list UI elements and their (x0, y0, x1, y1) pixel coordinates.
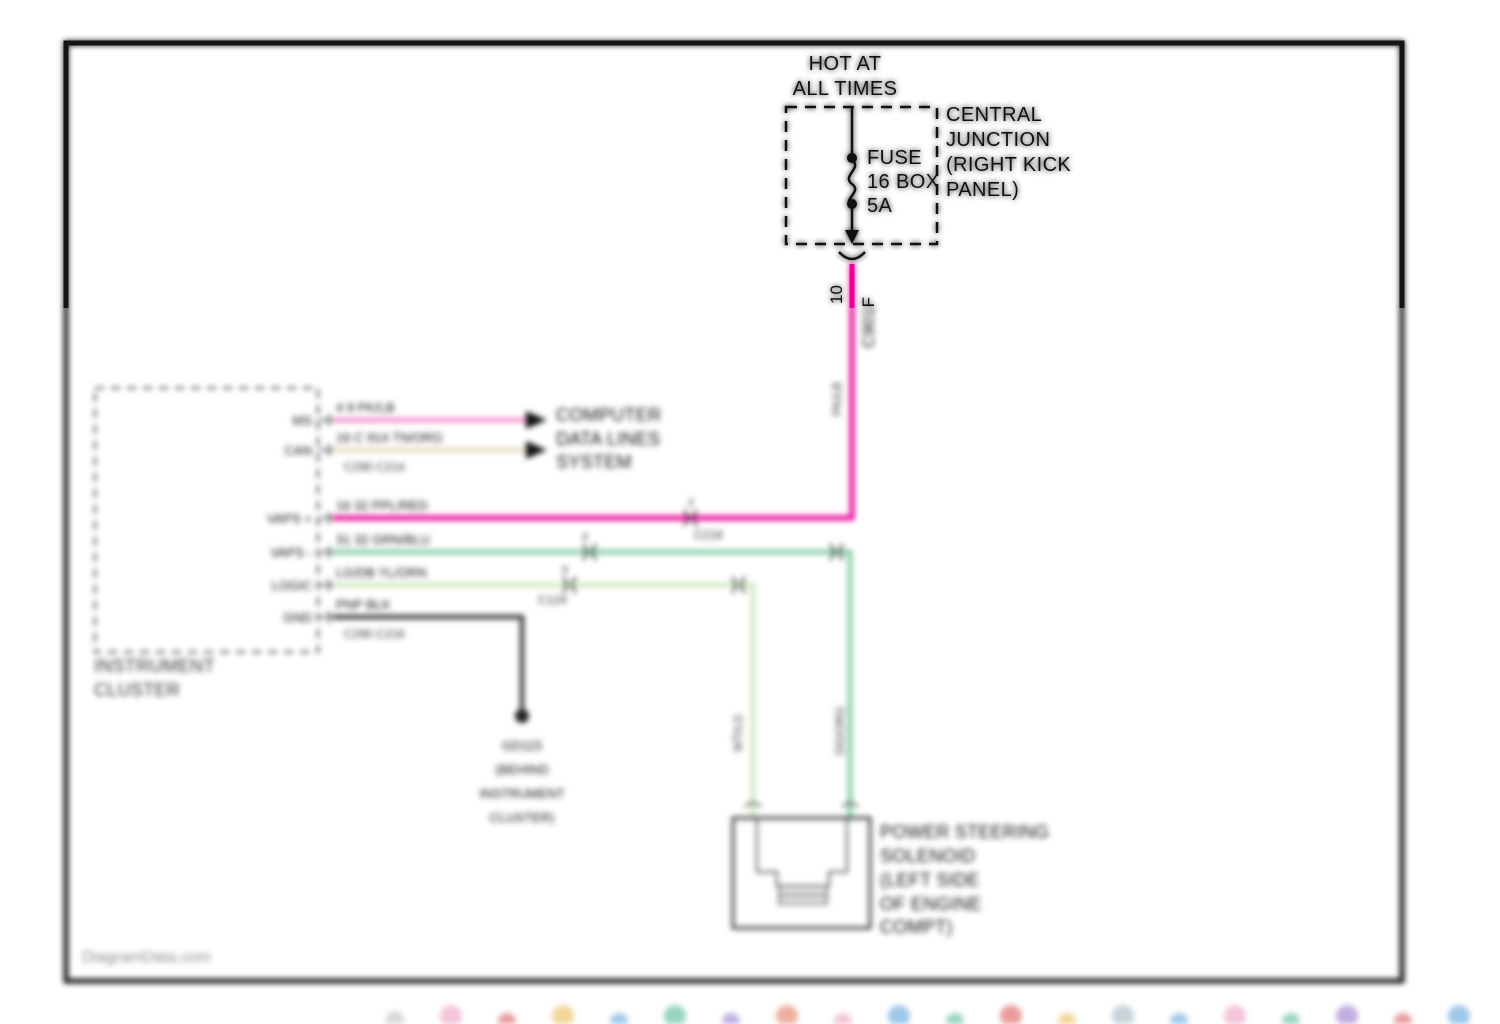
feed-connector-cap-icon (839, 252, 865, 259)
instrument-cluster-name-line2: CLUSTER (94, 680, 180, 700)
vaps-plus-wire-label: 16 32 PPL/RED (336, 498, 428, 513)
wiring-diagram-page: HOT AT ALL TIMES FUSE 16 BOX 5A CENTRAL … (0, 0, 1500, 1024)
ground-wire-label: PNP BLK (336, 597, 391, 612)
solenoid-label-line3: (LEFT SIDE (880, 870, 980, 890)
pin-label-can: CAN (285, 443, 312, 458)
solenoid-label-line1: POWER STEERING (880, 822, 1049, 842)
logic-inline-pin: 5 (562, 564, 568, 576)
ground-splice-dot (515, 709, 529, 723)
vaps-plus-inline-connector-label: C218 (694, 528, 723, 542)
vaps-plus-inline-pin: 2 (688, 497, 694, 509)
vaps-minus-wire (333, 552, 850, 818)
junction-location-line1: CENTRAL (946, 104, 1042, 126)
ground-location-line1: (BEHIND (495, 762, 548, 777)
pin-label-logic: LOGIC (272, 578, 312, 593)
watermark: DiagramData.com (82, 949, 211, 966)
bus-connectors-label: C290 C214 (344, 460, 405, 474)
fuse-label-line3: 5A (867, 195, 893, 217)
logic-wire (333, 585, 753, 818)
fuse-label-line2: 16 BOX (867, 171, 939, 193)
computer-data-lines-line1: COMPUTER (556, 405, 661, 425)
fuse-output-arrow-icon (845, 230, 859, 244)
solenoid-label-line4: OF ENGINE (880, 894, 982, 914)
fuse-label-line1: FUSE (867, 147, 922, 169)
bus-plus-arrow-icon (526, 411, 547, 429)
ground-location-line2: INSTRUMENT (479, 786, 564, 801)
junction-location-line4: PANEL) (946, 179, 1019, 201)
solenoid-terminal-caps-icon (745, 803, 858, 807)
computer-data-lines-line3: SYSTEM (556, 452, 632, 472)
logic-color-code-label: WT/LG (731, 714, 745, 752)
computer-data-lines-line2: DATA LINES (556, 429, 660, 449)
solenoid-box (733, 818, 870, 928)
solenoid-label-line2: SOLENOID (880, 846, 975, 866)
feed-pin-number: 10 (827, 285, 846, 304)
vaps-minus-wire-label: 31 32 GRN/BLU (336, 532, 430, 547)
vaps-minus-inline-pin: 4 (582, 531, 588, 543)
ground-id-label: GD115 (502, 738, 542, 753)
solenoid-coil-symbol (757, 818, 847, 886)
logic-inline-connector-label: C124 (538, 593, 567, 607)
ground-connectors-label: C290 C216 (344, 627, 405, 641)
junction-location-line3: (RIGHT KICK (946, 154, 1071, 176)
bus-plus-wire-label: 4 9 PK/LB (336, 400, 395, 415)
instrument-cluster-name-line1: INSTRUMENT (94, 656, 215, 676)
hot-at-label: HOT AT (809, 53, 882, 75)
solenoid-label-line5: COMPT) (880, 917, 953, 937)
bottom-thumbnail-strip (386, 1005, 1470, 1024)
cluster-pin-stubs (318, 420, 333, 617)
pin-label-gnd: GND (283, 610, 312, 625)
pin-label-vaps-minus: VAPS - (270, 545, 312, 560)
bus-minus-arrow-icon (526, 441, 547, 459)
bus-minus-wire-label: 16 C 914 TN/ORG (336, 430, 443, 445)
junction-location-line2: JUNCTION (946, 129, 1050, 151)
pin-label-vaps-plus: VAPS + (267, 511, 312, 526)
ground-location-line3: CLUSTER) (489, 810, 554, 825)
all-times-label: ALL TIMES (793, 78, 898, 100)
vaps-minus-color-code-label: DG/ORG (833, 706, 847, 755)
pin-label-ms: MS (293, 413, 313, 428)
logic-wire-label: LG/DB YL/ORN (336, 565, 427, 580)
feed-color-code-label: PK/LB (830, 382, 844, 416)
